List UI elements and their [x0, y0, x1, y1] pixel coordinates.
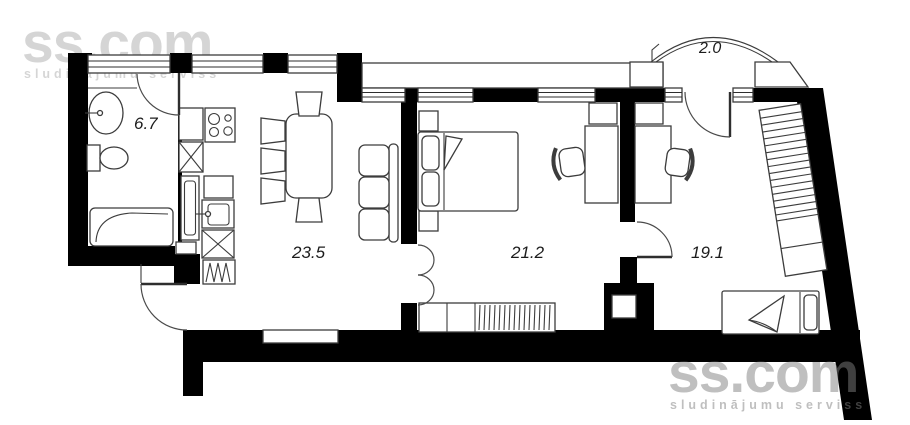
kitchen-cabinet: [204, 176, 233, 198]
vent-box: [179, 142, 203, 172]
window: [538, 88, 595, 102]
pillow: [422, 172, 439, 206]
chair: [261, 178, 285, 204]
sofa-cushion: [359, 145, 389, 176]
brand-text: ss.com: [668, 341, 858, 405]
window: [665, 88, 682, 102]
wall-pier: [405, 88, 418, 102]
dresser: [419, 303, 555, 332]
bathroom-fixtures: [85, 92, 173, 246]
single-bed: [722, 291, 819, 334]
dining-set: [261, 92, 332, 222]
room-label-bedroom: 21.2: [510, 243, 545, 262]
room-label-balcony: 2.0: [698, 40, 721, 57]
bathroom-bottom-wall: [68, 246, 175, 266]
nightstand: [419, 211, 438, 231]
living-bedroom-wall-stub: [401, 303, 417, 332]
window: [733, 88, 753, 102]
wall-corner-step: [337, 53, 362, 102]
room-label-bathroom: 6.7: [134, 114, 158, 133]
sink: [85, 92, 123, 134]
floor-plan-page: ss.com sludinājumu serviss: [0, 0, 910, 425]
living-bedroom-wall: [401, 102, 417, 244]
dresser-hatch: [479, 305, 550, 330]
toilet: [87, 145, 128, 171]
duct-shaft: [612, 295, 636, 318]
sofa-back: [389, 144, 398, 242]
double-bed: [418, 132, 518, 211]
wall-pier: [170, 53, 192, 73]
radiator-niche: [263, 330, 338, 343]
sofa-cushion: [359, 209, 389, 240]
bedroom-furniture: [418, 103, 618, 332]
window: [418, 88, 473, 102]
balcony-side-wall: [755, 62, 808, 87]
desk: [585, 126, 618, 203]
room-label-second-room: 19.1: [691, 243, 724, 262]
chair: [261, 118, 285, 144]
sofa-cushion: [359, 177, 389, 208]
desk-shelf: [635, 103, 663, 124]
balcony-side-wall: [630, 62, 663, 87]
bottom-wall-stub: [183, 362, 203, 396]
kitchen-wall-stub: [174, 254, 200, 284]
room-label-living: 23.5: [291, 243, 326, 262]
office-chair: [551, 144, 586, 180]
balcony-door: [685, 92, 730, 137]
chair: [261, 148, 285, 174]
vent-box: [202, 230, 234, 258]
pillow: [804, 295, 817, 330]
sofa: [359, 144, 398, 242]
chair: [296, 198, 322, 222]
left-exterior-wall: [68, 53, 88, 265]
kitchen-sink: [196, 200, 234, 228]
window: [362, 88, 405, 102]
window: [192, 55, 263, 73]
drain-pipe-line: [652, 44, 659, 62]
tagline-text: sludinājumu serviss: [670, 398, 866, 412]
tall-cabinet: [181, 176, 199, 240]
exterior-ledge: [362, 63, 663, 88]
window: [288, 55, 337, 73]
dining-table: [286, 114, 332, 198]
nightstand: [419, 111, 438, 131]
bedroom-double-door: [418, 245, 434, 305]
bathtub: [90, 208, 173, 246]
duct-box: [176, 242, 196, 254]
wall-pier: [473, 88, 538, 102]
chair: [296, 92, 322, 116]
wall-pier: [263, 53, 288, 73]
bedroom-room-wall: [620, 102, 635, 222]
floor-plan: ss.com sludinājumu serviss: [0, 0, 910, 425]
pillow: [422, 136, 439, 170]
window: [88, 55, 170, 73]
fridge-unit: [203, 260, 235, 284]
watermark-bottom-right: ss.com sludinājumu serviss: [668, 341, 866, 412]
desk-shelf: [589, 103, 617, 124]
stove: [205, 108, 235, 142]
wall-pier: [595, 88, 665, 102]
second-room-door: [637, 222, 672, 257]
kitchen-cabinet: [179, 108, 203, 140]
